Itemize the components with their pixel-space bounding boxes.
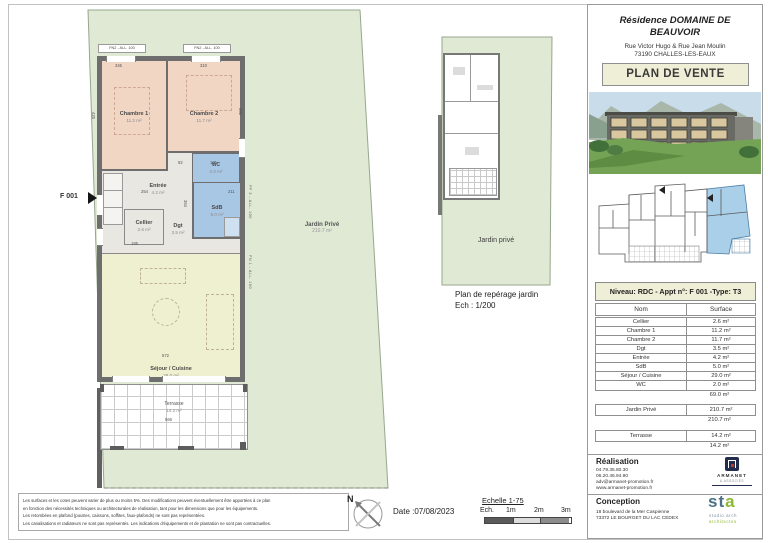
room-label: SdB <box>194 205 240 211</box>
compass-n-label: N <box>347 494 354 504</box>
mini-furniture <box>465 147 479 155</box>
dim-label: 345 <box>115 64 122 68</box>
window-gap <box>97 228 103 246</box>
jardin-prive-label: Jardin Privé 210.7 m² <box>272 222 372 234</box>
scale-tick: 2m <box>534 507 544 514</box>
room-dgt: Dgt 3.5 m² <box>164 209 192 253</box>
scale-prefix: Ech. <box>480 507 494 514</box>
scale-segment <box>485 518 513 523</box>
bay-door-gap <box>162 376 226 382</box>
architect-address-line: 73372 LE BOURGET DU LAC CEDEX <box>596 516 678 521</box>
kitchen-sink <box>103 190 123 208</box>
armanet-dot-glyph <box>731 464 734 467</box>
room-area: 4.2 m² <box>124 190 192 195</box>
room-label: Entrée <box>124 183 192 189</box>
dim-label: 171 <box>210 161 217 165</box>
legal-line: en fonction des nécessités techniques ou… <box>23 505 344 513</box>
scale-segment <box>541 518 569 523</box>
table-title-band: Niveau: RDC - Appt n°: F 001 -Type: T3 <box>595 282 756 301</box>
scale-tick: 3m <box>561 507 571 514</box>
armanet-logo-rule <box>712 485 752 486</box>
room-area: 3.5 m² <box>164 230 192 235</box>
column-header: Nom <box>596 304 687 315</box>
sta-logo-subtext: architectes <box>709 519 737 524</box>
address-line: Rue Victor Hugo & Rue Jean Moulin <box>588 43 762 50</box>
room-area: 2.0 m² <box>193 169 239 174</box>
table-header-row: Nom Surface <box>595 303 756 316</box>
sta-logo-text: sta <box>708 492 736 512</box>
room-sejour: Séjour / Cuisine 29.0 m² <box>102 253 240 377</box>
dim-label: 185 <box>131 242 138 246</box>
window-gap <box>239 138 245 158</box>
room-chambre1: Chambre 1 11.2 m² <box>102 61 168 171</box>
room-cellier: Cellier 2.6 m² <box>124 209 164 245</box>
dim-label: 425 <box>91 112 95 119</box>
room-label: Chambre 2 <box>168 111 240 117</box>
plan-de-vente-sheet: Chambre 1 11.2 m² Chambre 2 11.7 m² WC 2… <box>0 0 768 543</box>
dim-label: 211 <box>228 190 235 194</box>
room-area: 11.7 m² <box>168 118 240 123</box>
dim-label: 566 <box>165 418 172 422</box>
address-line: 73190 CHALLES-LES-EAUX <box>588 51 762 58</box>
dim-label: 572 <box>162 354 169 358</box>
compass-icon: N <box>346 492 388 534</box>
room-area: 2.6 m² <box>125 227 163 232</box>
legal-disclaimer-box: Les surfaces et les cotes peuvent varier… <box>18 493 349 531</box>
room-wc: WC 2.0 m² <box>192 153 240 183</box>
window-gap <box>191 56 221 62</box>
legal-line: Les retombées en plafond (poutres, caiss… <box>23 512 344 520</box>
room-label: Séjour / Cuisine <box>102 366 240 372</box>
table-total: 69.0 m² <box>685 392 754 398</box>
table-row-terrasse: Terrasse14.2 m² <box>595 430 756 442</box>
sofa-outline <box>206 294 234 350</box>
realisation-title: Réalisation <box>596 457 639 466</box>
table-total: 210.7 m² <box>685 417 754 423</box>
window-label: FN2 - ALL. 100 <box>98 44 146 53</box>
terrace-post <box>243 384 247 392</box>
mini-wall <box>445 133 498 134</box>
room-area: 5.0 m² <box>194 212 240 217</box>
armanet-logo-text: ARMANET <box>706 473 758 478</box>
mini-wall <box>445 101 498 102</box>
scale-bar <box>484 517 572 524</box>
plan-de-vente-banner: PLAN DE VENTE <box>602 63 749 86</box>
side-window-label: PF 2 - ALL. 100 <box>248 185 252 219</box>
room-entree: Entrée 4.2 m² <box>124 171 192 209</box>
terrace-post <box>240 442 246 450</box>
residence-title: BEAUVOIR <box>588 27 762 38</box>
table-total: 14.2 m² <box>685 443 754 449</box>
legal-line: Les canalisations et radiateurs ne sont … <box>23 520 344 528</box>
mini-terrace <box>449 168 497 196</box>
kitchen-unit <box>103 207 123 225</box>
section-divider <box>588 454 762 455</box>
reperage-mini-plan <box>443 53 500 200</box>
scale-title: Echelle 1-75 <box>482 496 524 505</box>
armanet-logo-icon <box>725 457 739 471</box>
room-label: Terrasse <box>101 401 247 407</box>
bay-door-gap <box>112 376 150 382</box>
armanet-logo-subtext: & ASSOCIÉS <box>706 479 758 483</box>
section-divider <box>588 494 762 495</box>
scale-tick: 1m <box>506 507 516 514</box>
terrasse: Terrasse 14.2 m² <box>100 384 248 450</box>
architect-address-line: 18 boulevard de la Mer Caspienne <box>596 510 669 515</box>
dim-label: 310 <box>200 64 207 68</box>
mini-furniture <box>453 67 465 75</box>
mini-furniture <box>477 85 493 90</box>
reperage-scale: Ech : 1/200 <box>455 301 495 310</box>
mini-wall <box>470 55 471 101</box>
kitchen-unit <box>103 173 123 191</box>
terrace-post <box>110 446 124 450</box>
room-label: Cellier <box>125 220 163 226</box>
email-line: adv@armanet-promotion.fr <box>596 480 653 485</box>
side-window-label: FN 1 - ALL. 100 <box>248 255 252 289</box>
reperage-caption: Plan de repérage jardin <box>455 290 538 299</box>
room-label: Chambre 1 <box>102 111 166 117</box>
dim-label: 364 <box>183 200 187 207</box>
bed-outline <box>186 75 232 111</box>
entrance-door-gap <box>97 195 103 215</box>
bathtub <box>224 217 240 237</box>
date-label: Date :07/08/2023 <box>393 507 454 516</box>
table-row-jardin: Jardin Privé210.7 m² <box>595 404 756 416</box>
residence-photo <box>589 92 761 174</box>
legal-line: Les surfaces et les cotes peuvent varier… <box>23 497 344 505</box>
title-block-column: Résidence DOMAINE DE BEAUVOIR Rue Victor… <box>587 4 763 539</box>
kitchen-island-outline <box>140 268 186 284</box>
window-gap <box>106 56 136 62</box>
website-line: www.armanet-promotion.fr <box>596 486 652 491</box>
conception-title: Conception <box>596 497 640 506</box>
table-outline <box>152 298 180 326</box>
dim-label: 254 <box>141 190 148 194</box>
building-site-plan <box>589 176 761 273</box>
dim-label: 92 <box>178 161 183 165</box>
room-chambre2: Chambre 2 11.7 m² <box>168 61 240 153</box>
room-area: 11.2 m² <box>102 118 166 123</box>
table-row: WC2.0 m² <box>595 380 756 391</box>
phone-line: 06.20.46.94.90 <box>596 474 628 479</box>
room-area: 14.2 m² <box>101 408 247 413</box>
window-label: FN2 - ALL. 100 <box>183 44 231 53</box>
terrace-post <box>178 446 194 450</box>
column-header: Surface <box>687 304 755 315</box>
unit-arrow-icon <box>88 192 97 204</box>
reperage-wall <box>438 115 442 215</box>
scale-segment <box>513 518 541 523</box>
apartment-floorplan: Chambre 1 11.2 m² Chambre 2 11.7 m² WC 2… <box>97 56 245 382</box>
phone-line: 04.79.35.80.30 <box>596 468 628 473</box>
terrace-post <box>100 384 104 392</box>
room-label: Dgt <box>164 223 192 229</box>
residence-title: Résidence DOMAINE DE <box>588 15 762 26</box>
sta-logo-subtext: studio arch <box>709 513 737 518</box>
dim-label: 390 <box>238 108 242 115</box>
unit-number-label: F 001 <box>60 193 78 200</box>
reperage-jardin-label: Jardin privé <box>440 237 552 244</box>
